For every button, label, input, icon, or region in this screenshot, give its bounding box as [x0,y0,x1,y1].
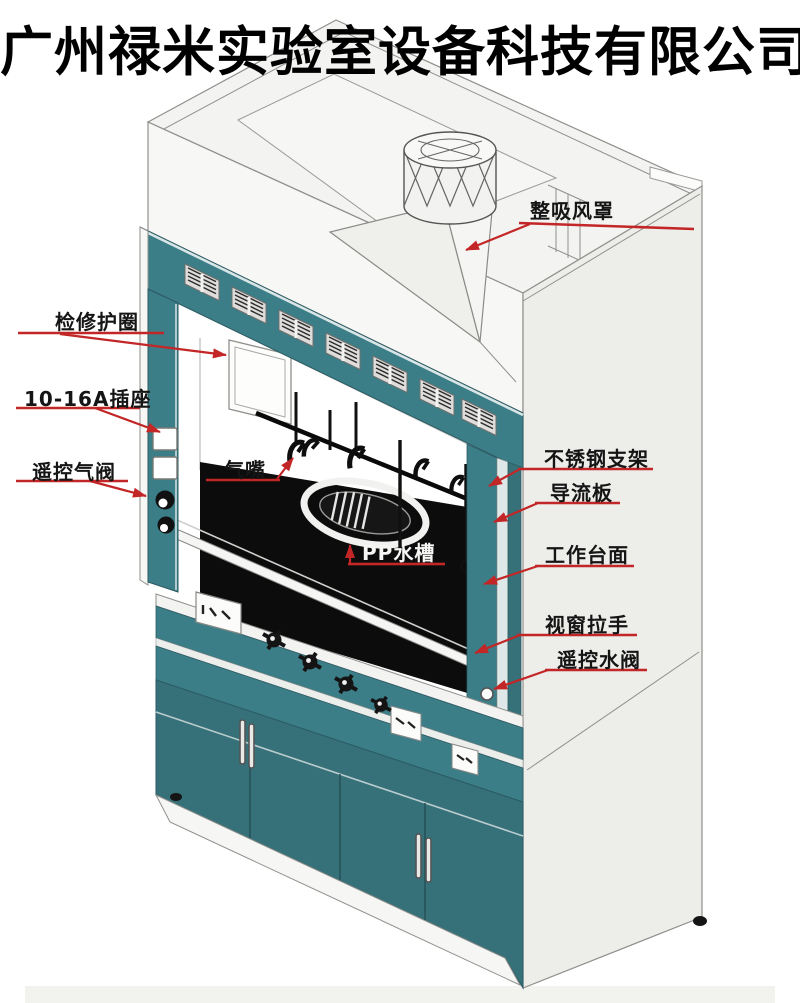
label-stainless-bracket: 不锈钢支架 [544,443,649,472]
label-power-socket: 10-16A插座 [24,383,151,412]
fume-hood-product-sheet: 广州禄米实验室设备科技有限公司 整吸风罩 检修护圈 10-16A插座 遥控气阀 … [0,0,800,1003]
leveling-foot [693,916,707,926]
label-exhaust-hood: 整吸风罩 [530,195,614,224]
label-gas-nozzle: 气嘴 [224,454,266,483]
exhaust-duct [404,132,496,224]
power-socket-outlet [153,457,177,479]
leveling-foot [170,793,182,801]
label-worktop: 工作台面 [545,539,629,568]
company-title: 广州禄米实验室设备科技有限公司 [0,10,800,86]
side-panel [523,186,707,988]
label-remote-gas-valve: 遥控气阀 [32,456,116,485]
label-pp-sink: PP水槽 [362,537,435,566]
remote-water-valve-knob [481,688,493,700]
door-handle [416,834,421,878]
label-service-ring: 检修护圈 [55,306,139,335]
label-remote-water-valve: 遥控水阀 [557,644,641,673]
door-handle [249,724,254,768]
fume-hood-illustration [0,0,800,1003]
door-handle [426,838,431,882]
door-handle [240,720,245,764]
label-baffle-plate: 导流板 [550,477,613,506]
ground-shadow [25,986,775,1003]
label-sash-handle: 视窗拉手 [545,609,629,638]
